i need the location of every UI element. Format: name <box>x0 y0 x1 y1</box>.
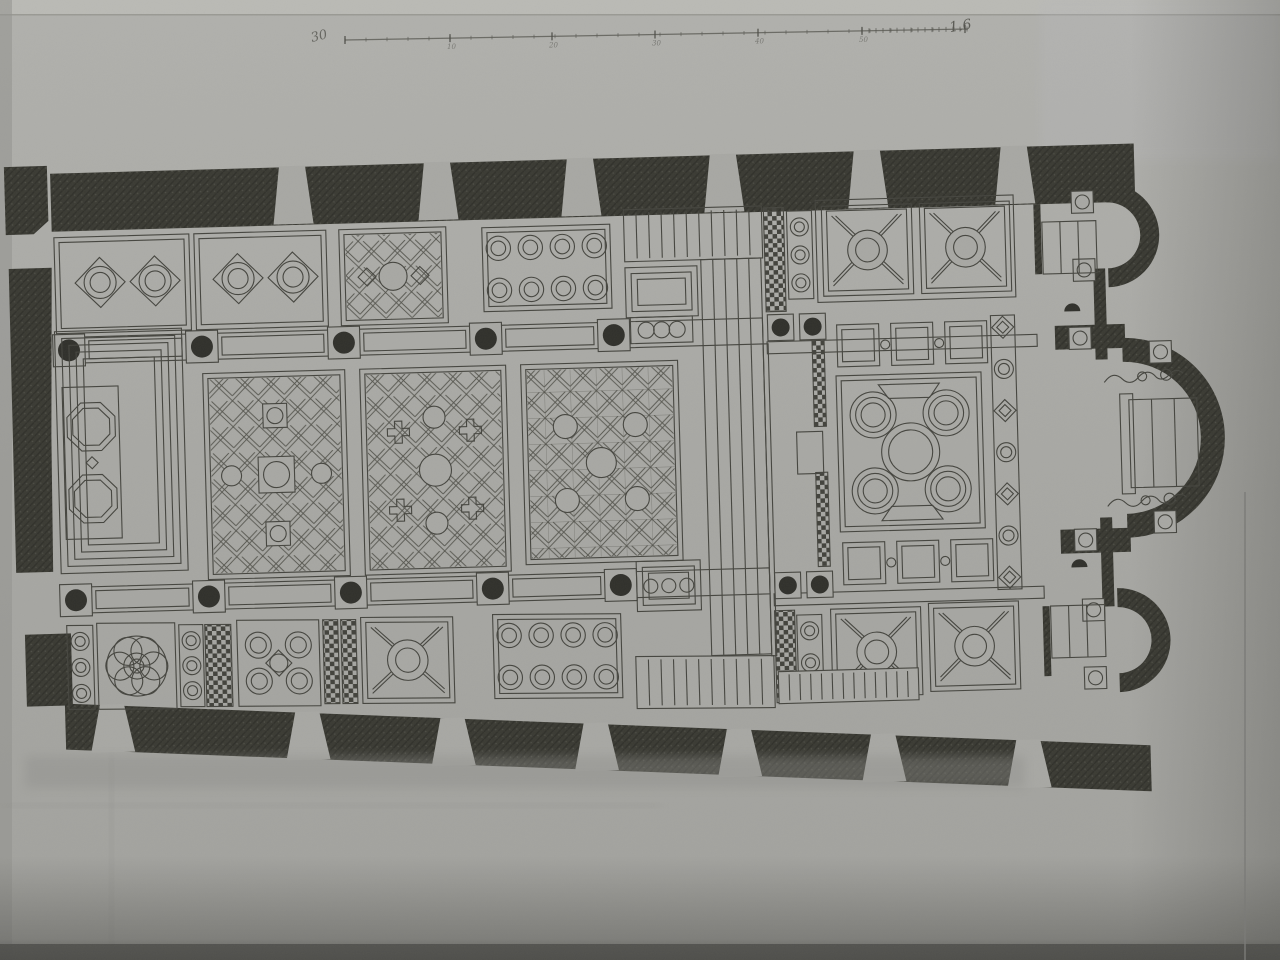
film-grain <box>0 0 1280 960</box>
plate-scan: 30 1.6 1020304050 <box>0 0 1280 960</box>
photographed-plate: 30 1.6 1020304050 <box>0 0 1280 960</box>
